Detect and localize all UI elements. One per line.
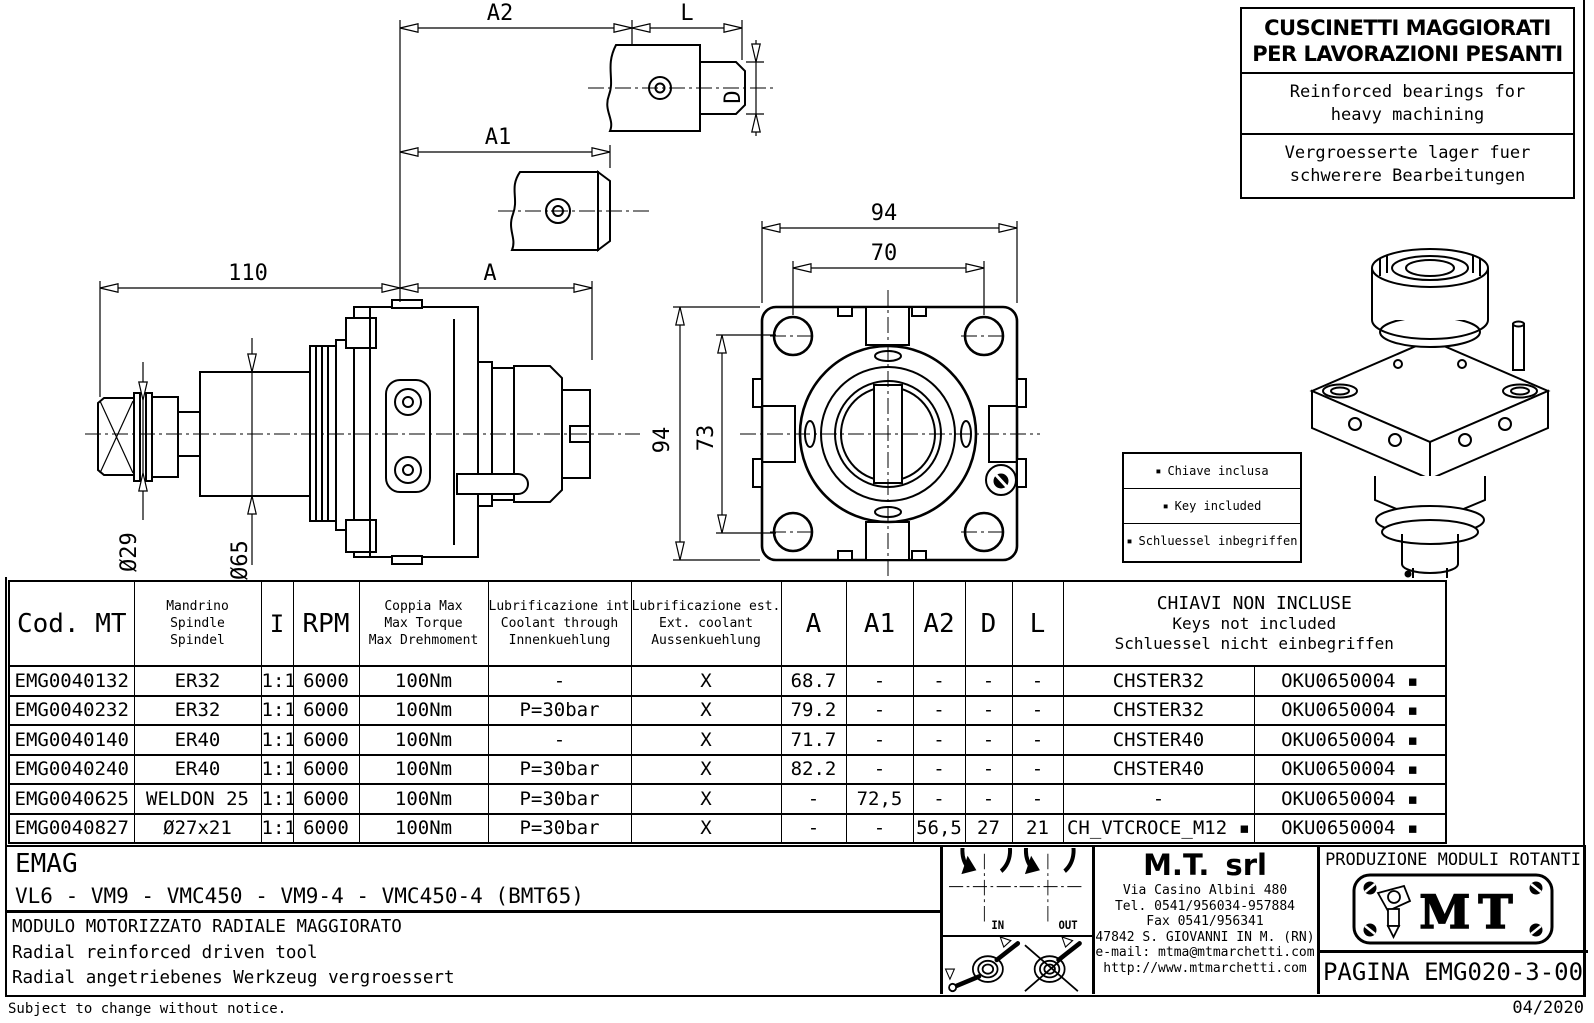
table-row: EMG0040232 ER32 1:1 6000 100Nm P=30bar X… xyxy=(9,696,1446,726)
cell-dim-d: - xyxy=(965,696,1012,726)
cell-key-oku: OKU0650004 ▪ xyxy=(1254,784,1446,814)
header-line: Keys not included xyxy=(1064,614,1446,634)
in-label: IN xyxy=(991,919,1004,933)
cell-rpm: 6000 xyxy=(293,755,359,785)
col-header-rpm: RPM xyxy=(293,581,359,666)
cell-dim-a2: - xyxy=(913,666,965,696)
cell-coolant-ext: X xyxy=(631,755,781,785)
col-header-l: L xyxy=(1012,581,1063,666)
cell-dim-a2: 56,5 xyxy=(913,814,965,844)
cell-ratio: 1:1 xyxy=(261,666,293,696)
cell-coolant-ext: X xyxy=(631,814,781,844)
banner-it-line2: PER LAVORAZIONI PESANTI xyxy=(1242,41,1573,67)
cell-torque: 100Nm xyxy=(359,725,488,755)
cell-key-code: - xyxy=(1063,784,1254,814)
cell-dim-a2: - xyxy=(913,725,965,755)
header-line: Spindle xyxy=(135,615,261,632)
bullet-icon: ▪ xyxy=(1155,466,1161,477)
page-number: PAGINA EMG020-3-00 xyxy=(1318,951,1588,993)
cell-spindle: Ø27x21 xyxy=(134,814,261,844)
disclaimer-note: Subject to change without notice. xyxy=(8,1001,286,1017)
key-included-box: ▪ Chiave inclusa ▪ Key included ▪ Schlue… xyxy=(1122,452,1302,563)
cell-dim-l: - xyxy=(1012,696,1063,726)
machine-models: VL6 - VM9 - VMC450 - VM9-4 - VMC450-4 (B… xyxy=(15,884,584,908)
col-header-torque: Coppia Max Max Torque Max Drehmoment xyxy=(359,581,488,666)
header-line: Schluessel nicht einbegriffen xyxy=(1064,634,1446,654)
cell-dim-l: - xyxy=(1012,725,1063,755)
company-email: e-mail: mtma@mtmarchetti.com xyxy=(1093,945,1317,961)
cell-coolant-int: - xyxy=(488,666,631,696)
company-address: Via Casino Albini 480 xyxy=(1093,883,1317,899)
header-line: Spindel xyxy=(135,632,261,649)
cell-dim-a1: - xyxy=(846,755,913,785)
dim-label-110: 110 xyxy=(228,261,268,286)
cell-torque: 100Nm xyxy=(359,696,488,726)
cell-coolant-int: P=30bar xyxy=(488,784,631,814)
cell-torque: 100Nm xyxy=(359,784,488,814)
technical-drawing-2d: A2 L D A1 110 A Ø29 Ø65 94 70 94 73 xyxy=(0,0,1100,580)
detail-views-drawing xyxy=(511,45,745,250)
cell-dim-a1: - xyxy=(846,814,913,844)
cell-dim-l: - xyxy=(1012,784,1063,814)
company-phone: Tel. 0541/956034-957884 xyxy=(1093,899,1317,915)
key-included-en: ▪ Key included xyxy=(1124,489,1300,524)
col-header-keys: CHIAVI NON INCLUSE Keys not included Sch… xyxy=(1063,581,1446,666)
customer-name: EMAG xyxy=(15,849,78,879)
banner-de-line1: Vergroesserte lager fuer xyxy=(1242,142,1573,165)
cell-key-oku: OKU0650004 ▪ xyxy=(1254,725,1446,755)
revision-date: 04/2020 xyxy=(1512,998,1584,1018)
cell-key-code: CHSTER40 xyxy=(1063,725,1254,755)
dim-label-a: A xyxy=(483,261,496,286)
cell-cod-mt: EMG0040240 xyxy=(9,755,134,785)
cell-spindle: ER32 xyxy=(134,696,261,726)
divider xyxy=(7,910,940,913)
cell-cod-mt: EMG0040132 xyxy=(9,666,134,696)
cell-coolant-ext: X xyxy=(631,784,781,814)
table-header-row: Cod. MT Mandrino Spindle Spindel I RPM C… xyxy=(9,581,1446,666)
table-row: EMG0040625 WELDON 25 1:1 6000 100Nm P=30… xyxy=(9,784,1446,814)
cell-key-code: CHSTER32 xyxy=(1063,696,1254,726)
banner-de-line2: schwerere Bearbeitungen xyxy=(1242,165,1573,188)
banner-it-line1: CUSCINETTI MAGGIORATI xyxy=(1242,15,1573,41)
cell-key-oku: OKU0650004 ▪ xyxy=(1254,755,1446,785)
col-header-cod-mt: Cod. MT xyxy=(9,581,134,666)
dim-label-94-left: 94 xyxy=(650,427,675,454)
cell-coolant-int: P=30bar xyxy=(488,755,631,785)
header-line: Max Torque xyxy=(360,615,488,632)
cell-cod-mt: EMG0040140 xyxy=(9,725,134,755)
cell-dim-a2: - xyxy=(913,784,965,814)
drawing-title-it: MODULO MOTORIZZATO RADIALE MAGGIORATO xyxy=(12,917,402,937)
cell-coolant-ext: X xyxy=(631,696,781,726)
direction-arrow-icon xyxy=(946,969,955,979)
cell-key-oku: OKU0650004 ▪ xyxy=(1254,666,1446,696)
header-line: Coppia Max xyxy=(360,598,488,615)
key-included-en-label: Key included xyxy=(1175,499,1262,513)
side-view-drawing xyxy=(98,300,590,564)
dim-label-a1: A1 xyxy=(485,125,512,150)
datasheet-page: A2 L D A1 110 A Ø29 Ø65 94 70 94 73 xyxy=(0,0,1594,1023)
cell-dim-a2: - xyxy=(913,696,965,726)
cell-ratio: 1:1 xyxy=(261,725,293,755)
col-header-a2: A2 xyxy=(913,581,965,666)
banner-en-line1: Reinforced bearings for xyxy=(1242,81,1573,104)
cell-spindle: ER40 xyxy=(134,725,261,755)
manufacturer-block: M.T. srl Via Casino Albini 480 Tel. 0541… xyxy=(1093,847,1317,976)
cell-coolant-ext: X xyxy=(631,725,781,755)
col-header-d: D xyxy=(965,581,1012,666)
cell-dim-d: - xyxy=(965,666,1012,696)
cell-coolant-int: - xyxy=(488,725,631,755)
cell-cod-mt: EMG0040232 xyxy=(9,696,134,726)
dim-label-d: D xyxy=(721,90,746,103)
cell-ratio: 1:1 xyxy=(261,755,293,785)
cell-dim-a: 71.7 xyxy=(781,725,846,755)
cell-dim-a: - xyxy=(781,814,846,844)
dim-label-70: 70 xyxy=(871,241,898,266)
cell-cod-mt: EMG0040625 xyxy=(9,784,134,814)
cell-dim-l: 21 xyxy=(1012,814,1063,844)
cell-spindle: WELDON 25 xyxy=(134,784,261,814)
table-row: EMG0040140 ER40 1:1 6000 100Nm - X 71.7 … xyxy=(9,725,1446,755)
bullet-icon: ▪ xyxy=(1163,501,1169,512)
cell-rpm: 6000 xyxy=(293,666,359,696)
col-header-a1: A1 xyxy=(846,581,913,666)
cell-dim-d: - xyxy=(965,755,1012,785)
rotation-direction-icons: IN OUT xyxy=(942,848,1092,935)
cell-coolant-int: P=30bar xyxy=(488,696,631,726)
drawing-title-de: Radial angetriebenes Werkzeug vergroesse… xyxy=(12,968,455,988)
drawing-title-en: Radial reinforced driven tool xyxy=(12,943,318,963)
cell-dim-a1: - xyxy=(846,666,913,696)
header-line: Innenkuehlung xyxy=(489,632,631,649)
out-label: OUT xyxy=(1058,919,1077,933)
cell-ratio: 1:1 xyxy=(261,784,293,814)
key-included-it-label: Chiave inclusa xyxy=(1167,464,1268,478)
wrench-usage-icons xyxy=(942,936,1092,993)
page-frame-left xyxy=(5,577,7,845)
table-row: EMG0040827 Ø27x21 1:1 6000 100Nm P=30bar… xyxy=(9,814,1446,844)
cell-dim-d: - xyxy=(965,784,1012,814)
col-header-spindle: Mandrino Spindle Spindel xyxy=(134,581,261,666)
company-city: 47842 S. GIOVANNI IN M. (RN) xyxy=(1093,930,1317,946)
cell-key-code: CH_VTCROCE_M12 ▪ xyxy=(1063,814,1254,844)
col-header-coolant-int: Lubrificazione int. Coolant through Inne… xyxy=(488,581,631,666)
cell-key-code: CHSTER40 xyxy=(1063,755,1254,785)
dim-label-73: 73 xyxy=(694,425,719,452)
logo-text: MT xyxy=(1419,885,1520,939)
col-header-ratio: I xyxy=(261,581,293,666)
cell-rpm: 6000 xyxy=(293,696,359,726)
banner-german: Vergroesserte lager fuer schwerere Bearb… xyxy=(1242,135,1573,194)
dim-label-dia29: Ø29 xyxy=(117,532,142,572)
col-header-a: A xyxy=(781,581,846,666)
cell-rpm: 6000 xyxy=(293,784,359,814)
cell-dim-d: 27 xyxy=(965,814,1012,844)
banner-english: Reinforced bearings for heavy machining xyxy=(1242,74,1573,135)
dim-label-a2: A2 xyxy=(487,1,514,26)
company-name: M.T. srl xyxy=(1093,847,1317,883)
cell-dim-l: - xyxy=(1012,755,1063,785)
title-block: EMAG VL6 - VM9 - VMC450 - VM9-4 - VMC450… xyxy=(5,845,1586,997)
table-row: EMG0040240 ER40 1:1 6000 100Nm P=30bar X… xyxy=(9,755,1446,785)
header-line: Coolant through xyxy=(489,615,631,632)
company-website: http://www.mtmarchetti.com xyxy=(1093,961,1317,977)
header-line: Aussenkuehlung xyxy=(632,632,781,649)
page-frame-right xyxy=(1583,0,1585,997)
cell-dim-l: - xyxy=(1012,666,1063,696)
cell-coolant-int: P=30bar xyxy=(488,814,631,844)
cell-dim-a: 79.2 xyxy=(781,696,846,726)
cell-key-oku: OKU0650004 ▪ xyxy=(1254,696,1446,726)
cell-dim-a: 68.7 xyxy=(781,666,846,696)
key-included-de: ▪ Schluessel inbegriffen xyxy=(1124,524,1300,558)
cell-spindle: ER40 xyxy=(134,755,261,785)
direction-arrow-icon xyxy=(1062,937,1073,947)
dim-label-94-top: 94 xyxy=(871,201,898,226)
cell-ratio: 1:1 xyxy=(261,696,293,726)
cell-dim-a1: - xyxy=(846,696,913,726)
cell-key-oku: OKU0650004 ▪ xyxy=(1254,814,1446,844)
header-line: CHIAVI NON INCLUSE xyxy=(1064,594,1446,614)
bullet-icon: ▪ xyxy=(1127,536,1133,547)
cell-dim-a: - xyxy=(781,784,846,814)
direction-arrow-icon xyxy=(1000,937,1011,947)
table-row: EMG0040132 ER32 1:1 6000 100Nm - X 68.7 … xyxy=(9,666,1446,696)
mt-logo: MT xyxy=(1348,871,1558,947)
cell-cod-mt: EMG0040827 xyxy=(9,814,134,844)
cell-dim-d: - xyxy=(965,725,1012,755)
dim-label-l: L xyxy=(680,1,693,26)
cell-rpm: 6000 xyxy=(293,725,359,755)
reinforced-bearings-banner: CUSCINETTI MAGGIORATI PER LAVORAZIONI PE… xyxy=(1240,7,1575,199)
cell-dim-a2: - xyxy=(913,755,965,785)
cell-spindle: ER32 xyxy=(134,666,261,696)
dim-label-dia65: Ø65 xyxy=(228,540,253,580)
cell-rpm: 6000 xyxy=(293,814,359,844)
cell-coolant-ext: X xyxy=(631,666,781,696)
header-line: Mandrino xyxy=(135,598,261,615)
cell-ratio: 1:1 xyxy=(261,814,293,844)
production-label: PRODUZIONE MODULI ROTANTI xyxy=(1318,849,1588,871)
cell-dim-a: 82.2 xyxy=(781,755,846,785)
cell-dim-a1: 72,5 xyxy=(846,784,913,814)
cell-dim-a1: - xyxy=(846,725,913,755)
cell-torque: 100Nm xyxy=(359,814,488,844)
key-included-it: ▪ Chiave inclusa xyxy=(1124,454,1300,489)
production-box: PRODUZIONE MODULI ROTANTI MT xyxy=(1318,849,1588,947)
banner-italian: CUSCINETTI MAGGIORATI PER LAVORAZIONI PE… xyxy=(1242,9,1573,74)
cell-key-code: CHSTER32 xyxy=(1063,666,1254,696)
key-included-de-label: Schluessel inbegriffen xyxy=(1139,534,1298,548)
col-header-coolant-ext: Lubrificazione est. Ext. coolant Aussenk… xyxy=(631,581,781,666)
header-line: Lubrificazione est. xyxy=(632,598,781,615)
header-line: Lubrificazione int. xyxy=(489,598,631,615)
company-fax: Fax 0541/956341 xyxy=(1093,914,1317,930)
cell-torque: 100Nm xyxy=(359,755,488,785)
header-line: Ext. coolant xyxy=(632,615,781,632)
cell-torque: 100Nm xyxy=(359,666,488,696)
banner-en-line2: heavy machining xyxy=(1242,104,1573,127)
specification-table: Cod. MT Mandrino Spindle Spindel I RPM C… xyxy=(8,580,1447,844)
header-line: Max Drehmoment xyxy=(360,632,488,649)
isometric-view-drawing xyxy=(1280,228,1590,578)
